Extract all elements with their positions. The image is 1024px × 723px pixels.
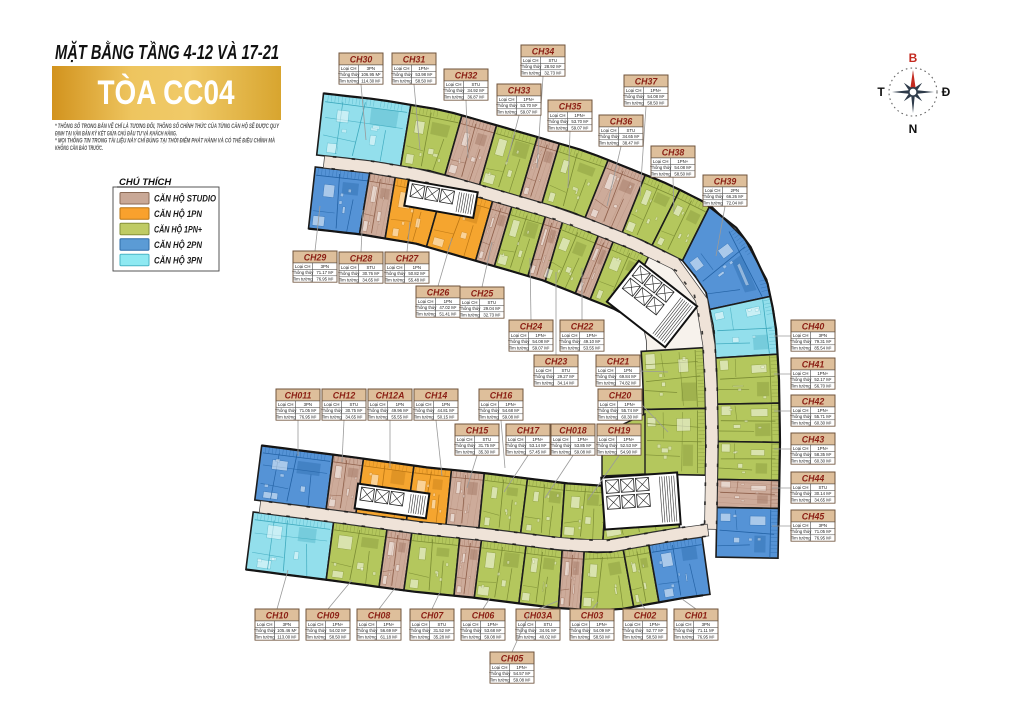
svg-text:51.41 M²: 51.41 M² [439,312,457,317]
svg-text:CĂN HỘ 2PN: CĂN HỘ 2PN [154,239,202,250]
svg-text:Tim tường: Tim tường [414,415,434,420]
svg-text:1PN+: 1PN+ [418,66,429,71]
svg-text:59.08 M²: 59.08 M² [484,635,502,640]
svg-text:Tim tường: Tim tường [444,95,464,100]
svg-text:CH06: CH06 [472,610,495,620]
svg-text:Loại CH: Loại CH [793,333,809,338]
svg-text:CH43: CH43 [802,434,825,444]
svg-text:36.87 M²: 36.87 M² [467,95,485,100]
svg-text:59.08 M²: 59.08 M² [574,450,592,455]
svg-text:Loại CH: Loại CH [553,437,569,442]
svg-text:STU: STU [482,437,491,442]
svg-text:Loại CH: Loại CH [518,622,534,627]
svg-text:3PN: 3PN [367,66,375,71]
svg-text:Loại CH: Loại CH [341,265,357,270]
svg-text:CH05: CH05 [501,653,524,663]
svg-text:Loại CH: Loại CH [626,88,642,93]
svg-text:57.45 M²: 57.45 M² [529,450,547,455]
svg-text:54.90 M²: 54.90 M² [620,450,638,455]
svg-text:CH39: CH39 [714,176,737,186]
svg-text:59.08 M²: 59.08 M² [502,415,520,420]
svg-text:Thông thủy: Thông thủy [790,529,812,534]
svg-text:1PN+: 1PN+ [505,402,516,407]
svg-text:1PN: 1PN [413,265,421,270]
svg-text:Loại CH: Loại CH [295,264,311,269]
svg-text:3PN: 3PN [819,523,827,528]
svg-text:Loại CH: Loại CH [600,402,616,407]
svg-text:55.55 M²: 55.55 M² [391,415,409,420]
svg-text:Tim tường: Tim tường [703,201,723,206]
svg-text:Loại CH: Loại CH [492,665,508,670]
svg-text:35.28 M²: 35.28 M² [433,635,451,640]
svg-text:Loại CH: Loại CH [387,265,403,270]
svg-text:50.82 M²: 50.82 M² [408,271,426,276]
svg-text:Loại CH: Loại CH [793,523,809,528]
svg-text:55.71 M²: 55.71 M² [814,414,832,419]
svg-text:Thông thủy: Thông thủy [384,271,406,276]
svg-text:CH10: CH10 [266,610,289,620]
svg-text:60.30 M²: 60.30 M² [814,459,832,464]
svg-text:Thông thủy: Thông thủy [443,88,465,93]
svg-text:STU: STU [543,622,552,627]
svg-text:Thông thủy: Thông thủy [790,491,812,496]
svg-text:Tim tường: Tim tường [293,277,313,282]
svg-text:CH35: CH35 [559,101,582,111]
svg-text:53.68 M²: 53.68 M² [484,628,502,633]
svg-text:Thông thủy: Thông thủy [409,628,431,633]
svg-text:Tim tường: Tim tường [534,381,554,386]
svg-text:CĂN HỘ STUDIO: CĂN HỘ STUDIO [154,193,216,204]
svg-text:52.17 M²: 52.17 M² [814,377,832,382]
svg-text:71.05 M²: 71.05 M² [299,408,317,413]
svg-text:55.74 M²: 55.74 M² [621,408,639,413]
svg-text:Tim tường: Tim tường [497,110,517,115]
svg-text:Thông thủy: Thông thủy [413,408,435,413]
svg-text:CH07: CH07 [421,610,445,620]
svg-text:Thông thủy: Thông thủy [489,671,511,676]
svg-text:1PN+: 1PN+ [586,333,597,338]
svg-text:1PN+: 1PN+ [650,88,661,93]
svg-text:114.30 M²: 114.30 M² [361,79,381,84]
svg-text:66.26 M²: 66.26 M² [726,194,744,199]
svg-text:Tim tường: Tim tường [624,101,644,106]
svg-text:Loại CH: Loại CH [511,333,527,338]
svg-text:Loại CH: Loại CH [499,97,515,102]
svg-text:1PN+: 1PN+ [332,622,343,627]
svg-text:85.54 M²: 85.54 M² [814,346,832,351]
svg-text:CH23: CH23 [545,356,568,366]
svg-text:Thông thủy: Thông thủy [790,339,812,344]
svg-text:79.31 M²: 79.31 M² [814,339,832,344]
svg-text:2PN: 2PN [731,188,739,193]
svg-text:Tim tường: Tim tường [509,346,529,351]
svg-text:CH018: CH018 [559,425,586,435]
svg-text:1PN+: 1PN+ [817,408,828,413]
svg-text:CH02: CH02 [634,610,657,620]
svg-text:1PN+: 1PN+ [383,622,394,627]
svg-text:29.27 M²: 29.27 M² [557,374,575,379]
svg-text:Loại CH: Loại CH [536,368,552,373]
svg-text:35.30 M²: 35.30 M² [478,450,496,455]
svg-text:61.18 M²: 61.18 M² [380,635,398,640]
svg-text:Thông thủy: Thông thủy [508,339,530,344]
svg-text:49.10 M²: 49.10 M² [583,339,601,344]
svg-text:30.76 M²: 30.76 M² [362,271,380,276]
svg-text:Tim tường: Tim tường [322,415,342,420]
svg-text:Loại CH: Loại CH [416,402,432,407]
svg-text:STU: STU [487,300,496,305]
svg-text:53.14 M²: 53.14 M² [529,443,547,448]
svg-text:Đ: Đ [942,85,951,99]
svg-text:76.95 M²: 76.95 M² [316,277,334,282]
svg-text:Loại CH: Loại CH [793,408,809,413]
svg-text:32.73 M²: 32.73 M² [544,71,562,76]
svg-text:Loại CH: Loại CH [257,622,273,627]
svg-text:Thông thủy: Thông thủy [338,271,360,276]
svg-text:Tim tường: Tim tường [674,635,694,640]
svg-text:Loại CH: Loại CH [359,622,375,627]
svg-text:50.15 M²: 50.15 M² [437,415,455,420]
svg-text:58.35 M²: 58.35 M² [814,452,832,457]
svg-text:Tim tường: Tim tường [490,678,510,683]
svg-text:Tim tường: Tim tường [461,635,481,640]
svg-text:1PN+: 1PN+ [624,402,635,407]
svg-text:CH011: CH011 [285,390,312,400]
svg-text:Thông thủy: Thông thủy [505,443,527,448]
svg-text:Loại CH: Loại CH [394,66,410,71]
svg-text:3PN: 3PN [321,264,329,269]
svg-text:49.96 M²: 49.96 M² [391,408,409,413]
svg-text:Tim tường: Tim tường [416,312,436,317]
svg-text:Loại CH: Loại CH [462,300,478,305]
svg-text:CH14: CH14 [425,390,448,400]
svg-text:1PN: 1PN [624,368,632,373]
svg-text:Thông thủy: Thông thủy [547,119,569,124]
svg-text:3PN: 3PN [702,622,710,627]
svg-text:Tim tường: Tim tường [598,415,618,420]
svg-text:CH40: CH40 [802,321,825,331]
svg-text:Tim tường: Tim tường [410,635,430,640]
svg-text:Loại CH: Loại CH [793,371,809,376]
svg-text:CH31: CH31 [403,54,426,64]
svg-text:1PN+: 1PN+ [523,97,534,102]
svg-text:71.05 M²: 71.05 M² [814,529,832,534]
svg-text:58.50 M²: 58.50 M² [646,635,664,640]
svg-text:Tim tường: Tim tường [521,71,541,76]
svg-text:STU: STU [366,265,375,270]
svg-text:1PN: 1PN [442,402,450,407]
svg-text:1PN+: 1PN+ [817,371,828,376]
svg-text:1PN+: 1PN+ [516,665,527,670]
svg-text:32.73 M²: 32.73 M² [483,313,501,318]
svg-text:58.50 M²: 58.50 M² [647,101,665,106]
svg-text:74.82 M²: 74.82 M² [619,381,637,386]
svg-text:53.98 M²: 53.98 M² [415,72,433,77]
svg-text:ĐỊNH TẠI VĂN BẢN KÝ KẾT GIỪA: ĐỊNH TẠI VĂN BẢN KÝ KẾT GIỪA CHỦ ĐẦU TƯ … [55,129,177,137]
svg-text:Tim tường: Tim tường [791,459,811,464]
svg-text:Tim tường: Tim tường [276,415,296,420]
svg-text:Loại CH: Loại CH [523,58,539,63]
svg-text:STU: STU [437,622,446,627]
svg-text:CH17: CH17 [517,425,541,435]
svg-text:1PN+: 1PN+ [487,622,498,627]
svg-text:47.02 M²: 47.02 M² [439,305,457,310]
svg-text:34.65 M²: 34.65 M² [622,134,640,139]
svg-text:Tim tường: Tim tường [791,536,811,541]
svg-text:CH21: CH21 [607,356,630,366]
svg-text:CĂN HỘ 1PN: CĂN HỘ 1PN [154,208,202,219]
svg-text:Thông thủy: Thông thủy [650,165,672,170]
svg-text:Thông thủy: Thông thủy [569,628,591,633]
svg-text:Tim tường: Tim tường [791,421,811,426]
svg-text:CH25: CH25 [471,288,494,298]
svg-text:53.70 M²: 53.70 M² [571,119,589,124]
svg-text:56.70 M²: 56.70 M² [814,384,832,389]
svg-text:Tim tường: Tim tường [306,635,326,640]
svg-text:Thông thủy: Thông thủy [520,64,542,69]
svg-text:3PN: 3PN [283,622,291,627]
svg-text:Loại CH: Loại CH [481,402,497,407]
svg-text:Tim tường: Tim tường [479,415,499,420]
svg-text:53.85 M²: 53.85 M² [574,443,592,448]
svg-text:Loại CH: Loại CH [418,299,434,304]
svg-text:Loại CH: Loại CH [463,622,479,627]
svg-text:T: T [877,85,885,99]
svg-text:Thông thủy: Thông thủy [478,408,500,413]
svg-text:1PN+: 1PN+ [577,437,588,442]
svg-text:Tim tường: Tim tường [368,415,388,420]
svg-text:34.92 M²: 34.92 M² [467,88,485,93]
svg-text:59.07 M²: 59.07 M² [520,110,538,115]
svg-text:CH15: CH15 [466,425,489,435]
svg-text:Thông thủy: Thông thủy [597,408,619,413]
svg-text:Loại CH: Loại CH [793,485,809,490]
svg-text:Thông thủy: Thông thủy [559,339,581,344]
svg-text:Thông thủy: Thông thủy [598,134,620,139]
svg-text:Thông thủy: Thông thủy [790,452,812,457]
svg-text:Thông thủy: Thông thủy [305,628,327,633]
svg-text:72.04 M²: 72.04 M² [726,201,744,206]
svg-text:54.57 M²: 54.57 M² [513,671,531,676]
svg-text:CH22: CH22 [571,321,594,331]
svg-text:54.08 M²: 54.08 M² [674,165,692,170]
svg-text:Thông thủy: Thông thủy [367,408,389,413]
svg-text:Thông thủy: Thông thủy [454,443,476,448]
svg-text:76.95 M²: 76.95 M² [697,635,715,640]
svg-text:1PN+: 1PN+ [596,622,607,627]
svg-text:STU: STU [818,485,827,490]
svg-text:Thông thủy: Thông thủy [254,628,276,633]
svg-text:Loại CH: Loại CH [601,128,617,133]
svg-text:STU: STU [471,82,480,87]
svg-text:56.69 M²: 56.69 M² [380,628,398,633]
svg-text:54.68 M²: 54.68 M² [502,408,520,413]
svg-text:Tim tường: Tim tường [560,346,580,351]
svg-text:Tim tường: Tim tường [385,278,405,283]
svg-text:105.46 M²: 105.46 M² [277,628,297,633]
svg-text:1PN+: 1PN+ [623,437,634,442]
svg-text:30.75 M²: 30.75 M² [345,408,363,413]
svg-text:Thông thủy: Thông thủy [595,374,617,379]
svg-text:60.30 M²: 60.30 M² [814,421,832,426]
svg-text:55.48 M²: 55.48 M² [408,278,426,283]
svg-text:60.30 M²: 60.30 M² [621,415,639,420]
svg-text:CH12: CH12 [333,390,356,400]
svg-text:Tim tường: Tim tường [651,172,671,177]
svg-text:CH27: CH27 [396,253,420,263]
svg-text:CH03: CH03 [581,610,604,620]
svg-text:STU: STU [548,58,557,63]
svg-text:Thông thủy: Thông thủy [460,628,482,633]
svg-text:54.08 M²: 54.08 M² [647,94,665,99]
svg-text:58.50 M²: 58.50 M² [329,635,347,640]
svg-text:Loại CH: Loại CH [793,446,809,451]
svg-text:CHÚ THÍCH: CHÚ THÍCH [119,176,172,188]
svg-text:Tim tường: Tim tường [791,384,811,389]
svg-text:CH16: CH16 [490,390,513,400]
svg-text:Tim tường: Tim tường [791,498,811,503]
svg-text:Loại CH: Loại CH [653,159,669,164]
svg-text:Tim tường: Tim tường [339,278,359,283]
svg-text:59.07 M²: 59.07 M² [532,346,550,351]
svg-text:CH33: CH33 [508,85,531,95]
svg-text:Tim tường: Tim tường [597,450,617,455]
svg-text:29.04 M²: 29.04 M² [483,306,501,311]
svg-text:CH03A: CH03A [524,610,553,620]
svg-text:44.81 M²: 44.81 M² [437,408,455,413]
svg-text:76.95 M²: 76.95 M² [299,415,317,420]
svg-text:Thông thủy: Thông thủy [702,194,724,199]
svg-text:Thông thủy: Thông thủy [496,103,518,108]
svg-text:Thông thủy: Thông thủy [459,306,481,311]
svg-text:Tim tường: Tim tường [357,635,377,640]
svg-text:CH28: CH28 [350,253,373,263]
svg-text:Thông thủy: Thông thủy [275,408,297,413]
svg-text:71.17 M²: 71.17 M² [316,270,334,275]
svg-text:Thông thủy: Thông thủy [321,408,343,413]
svg-text:CH08: CH08 [368,610,391,620]
svg-text:Tim tường: Tim tường [791,346,811,351]
svg-text:30.14 M²: 30.14 M² [814,491,832,496]
svg-text:Thông thủy: Thông thủy [391,72,413,77]
svg-text:N: N [909,122,918,136]
svg-text:CH29: CH29 [304,252,327,262]
svg-text:Thông thủy: Thông thủy [338,72,360,77]
svg-text:Loại CH: Loại CH [341,66,357,71]
svg-text:Loại CH: Loại CH [676,622,692,627]
svg-text:CH45: CH45 [802,511,825,521]
svg-text:Thông thủy: Thông thủy [790,414,812,419]
svg-text:CH12A: CH12A [376,390,405,400]
svg-text:KHÔNG CẦN BÁO TRƯỚC.: KHÔNG CẦN BÁO TRƯỚC. [55,144,103,152]
svg-text:54.09 M²: 54.09 M² [593,628,611,633]
svg-text:Loại CH: Loại CH [550,113,566,118]
svg-text:38.47 M²: 38.47 M² [622,141,640,146]
svg-text:Tim tường: Tim tường [599,141,619,146]
svg-text:1PN: 1PN [444,299,452,304]
svg-text:Thông thủy: Thông thủy [622,628,644,633]
svg-text:Tim tường: Tim tường [548,126,568,131]
svg-text:STU: STU [349,402,358,407]
svg-text:1PN+: 1PN+ [817,446,828,451]
svg-text:34.65 M²: 34.65 M² [362,278,380,283]
svg-text:Tim tường: Tim tường [570,635,590,640]
svg-text:CH36: CH36 [610,116,633,126]
svg-text:CH19: CH19 [608,425,631,435]
svg-text:CH34: CH34 [532,46,555,56]
svg-text:52.77 M²: 52.77 M² [646,628,664,633]
svg-text:MẶT BẰNG TẦNG 4-12 VÀ 17-21: MẶT BẰNG TẦNG 4-12 VÀ 17-21 [55,40,279,64]
svg-text:Thông thủy: Thông thủy [356,628,378,633]
svg-text:Loại CH: Loại CH [308,622,324,627]
svg-text:* THÔNG SỐ TRONG BẢN VẼ CHỈ LÀ: * THÔNG SỐ TRONG BẢN VẼ CHỈ LÀ TƯƠNG ĐỐI… [55,122,280,130]
svg-text:1PN+: 1PN+ [677,159,688,164]
svg-text:Tim tường: Tim tường [460,313,480,318]
svg-text:Loại CH: Loại CH [278,402,294,407]
svg-text:Thông thủy: Thông thủy [515,628,537,633]
svg-text:Loại CH: Loại CH [457,437,473,442]
svg-text:34.91 M²: 34.91 M² [539,628,557,633]
svg-text:3PN: 3PN [819,333,827,338]
svg-text:76.95 M²: 76.95 M² [814,536,832,541]
svg-text:Thông thủy: Thông thủy [292,270,314,275]
svg-text:Tim tường: Tim tường [392,79,412,84]
svg-text:Loại CH: Loại CH [599,437,615,442]
svg-text:53.70 M²: 53.70 M² [520,103,538,108]
svg-text:Loại CH: Loại CH [572,622,588,627]
svg-text:CH42: CH42 [802,396,825,406]
svg-text:58.50 M²: 58.50 M² [674,172,692,177]
svg-text:34.65 M²: 34.65 M² [345,415,363,420]
svg-text:Tim tường: Tim tường [506,450,526,455]
svg-text:Tim tường: Tim tường [255,635,275,640]
svg-text:TÒA CC04: TÒA CC04 [98,74,235,112]
svg-text:31.52 M²: 31.52 M² [433,628,451,633]
svg-text:CH38: CH38 [662,147,685,157]
svg-text:71.11 M²: 71.11 M² [697,628,714,633]
svg-text:52.53 M²: 52.53 M² [620,443,638,448]
svg-text:Tim tường: Tim tường [623,635,643,640]
svg-text:Loại CH: Loại CH [370,402,386,407]
svg-text:34.65 M²: 34.65 M² [814,498,832,503]
svg-text:CĂN HỘ 3PN: CĂN HỘ 3PN [154,254,202,265]
svg-text:3PN: 3PN [304,402,312,407]
svg-text:28.92 M²: 28.92 M² [544,64,562,69]
svg-text:CH44: CH44 [802,473,825,483]
svg-text:Thông thủy: Thông thủy [415,305,437,310]
svg-text:CH30: CH30 [350,54,373,64]
svg-text:CH26: CH26 [427,287,450,297]
svg-text:STU: STU [626,128,635,133]
svg-text:113.00 M²: 113.00 M² [277,635,297,640]
svg-text:Loại CH: Loại CH [598,368,614,373]
svg-text:Loại CH: Loại CH [562,333,578,338]
svg-text:106.95 M²: 106.95 M² [361,72,381,77]
svg-text:Thông thủy: Thông thủy [533,374,555,379]
svg-text:34.14 M²: 34.14 M² [557,381,575,386]
svg-text:59.07 M²: 59.07 M² [571,126,589,131]
svg-text:1PN+: 1PN+ [535,333,546,338]
svg-text:Thông thủy: Thông thủy [790,377,812,382]
svg-text:CH09: CH09 [317,610,340,620]
svg-text:Thông thủy: Thông thủy [673,628,695,633]
svg-text:Tim tường: Tim tường [596,381,616,386]
svg-text:CĂN HỘ 1PN+: CĂN HỘ 1PN+ [154,224,202,235]
svg-text:Loại CH: Loại CH [412,622,428,627]
svg-text:B: B [909,51,918,65]
svg-text:40.02 M²: 40.02 M² [539,635,557,640]
svg-text:Thông thủy: Thông thủy [550,443,572,448]
